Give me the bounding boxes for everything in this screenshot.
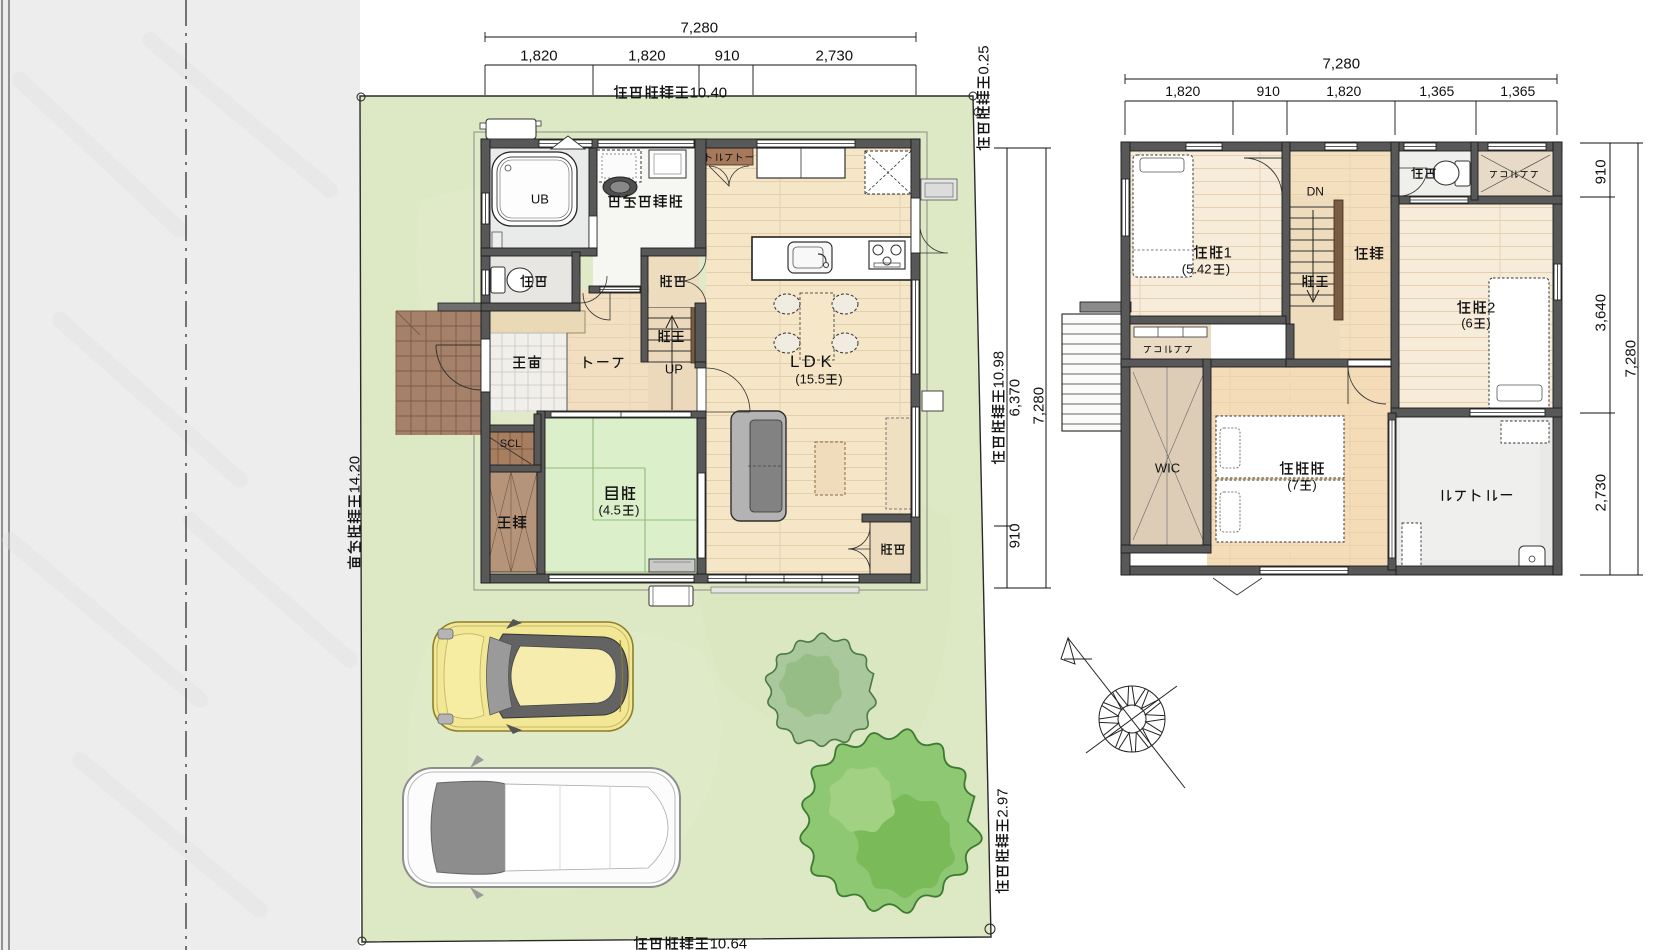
svg-text:910: 910 xyxy=(715,47,740,64)
svg-text:2.97: 2.97 xyxy=(994,788,1011,817)
svg-text:1,365: 1,365 xyxy=(1500,83,1535,99)
svg-text:): ) xyxy=(1312,478,1316,493)
svg-text:UP: UP xyxy=(665,362,683,377)
svg-text:(7: (7 xyxy=(1287,478,1299,493)
svg-text:): ) xyxy=(1226,262,1230,277)
svg-text:7,280: 7,280 xyxy=(681,19,719,36)
svg-text:1,820: 1,820 xyxy=(628,47,666,64)
svg-text:): ) xyxy=(635,503,639,518)
svg-text:UB: UB xyxy=(531,192,549,207)
svg-text:910: 910 xyxy=(1592,159,1609,184)
svg-text:10.64: 10.64 xyxy=(710,935,748,950)
svg-text:14.20: 14.20 xyxy=(346,456,363,494)
svg-text:7,280: 7,280 xyxy=(1323,55,1361,72)
svg-text:2,730: 2,730 xyxy=(816,47,854,64)
svg-text:(4.5: (4.5 xyxy=(599,503,621,518)
svg-text:(5.42: (5.42 xyxy=(1182,262,1212,277)
svg-text:): ) xyxy=(1486,316,1490,331)
svg-text:(6: (6 xyxy=(1461,316,1473,331)
svg-text:1: 1 xyxy=(1224,244,1232,261)
svg-text:7,280: 7,280 xyxy=(1622,340,1639,378)
svg-text:SCL: SCL xyxy=(500,438,521,450)
svg-text:10.98: 10.98 xyxy=(990,351,1007,389)
svg-text:3,640: 3,640 xyxy=(1592,294,1609,332)
svg-text:1,365: 1,365 xyxy=(1419,83,1454,99)
svg-text:2,730: 2,730 xyxy=(1592,474,1609,512)
svg-text:): ) xyxy=(838,372,842,387)
svg-text:(15.5: (15.5 xyxy=(795,372,825,387)
svg-text:7,280: 7,280 xyxy=(1030,387,1047,425)
svg-text:2: 2 xyxy=(1487,299,1495,316)
svg-text:1,820: 1,820 xyxy=(520,47,558,64)
svg-text:6,370: 6,370 xyxy=(1006,379,1023,417)
svg-text:910: 910 xyxy=(1257,83,1281,99)
svg-text:0.25: 0.25 xyxy=(975,45,992,74)
svg-text:1,820: 1,820 xyxy=(1165,83,1200,99)
svg-text:DN: DN xyxy=(1307,184,1324,198)
svg-text:WIC: WIC xyxy=(1155,461,1180,476)
svg-text:910: 910 xyxy=(1006,523,1023,548)
svg-text:1,820: 1,820 xyxy=(1326,83,1361,99)
svg-text:10.40: 10.40 xyxy=(690,84,728,101)
svg-text:L D K: L D K xyxy=(790,352,833,371)
